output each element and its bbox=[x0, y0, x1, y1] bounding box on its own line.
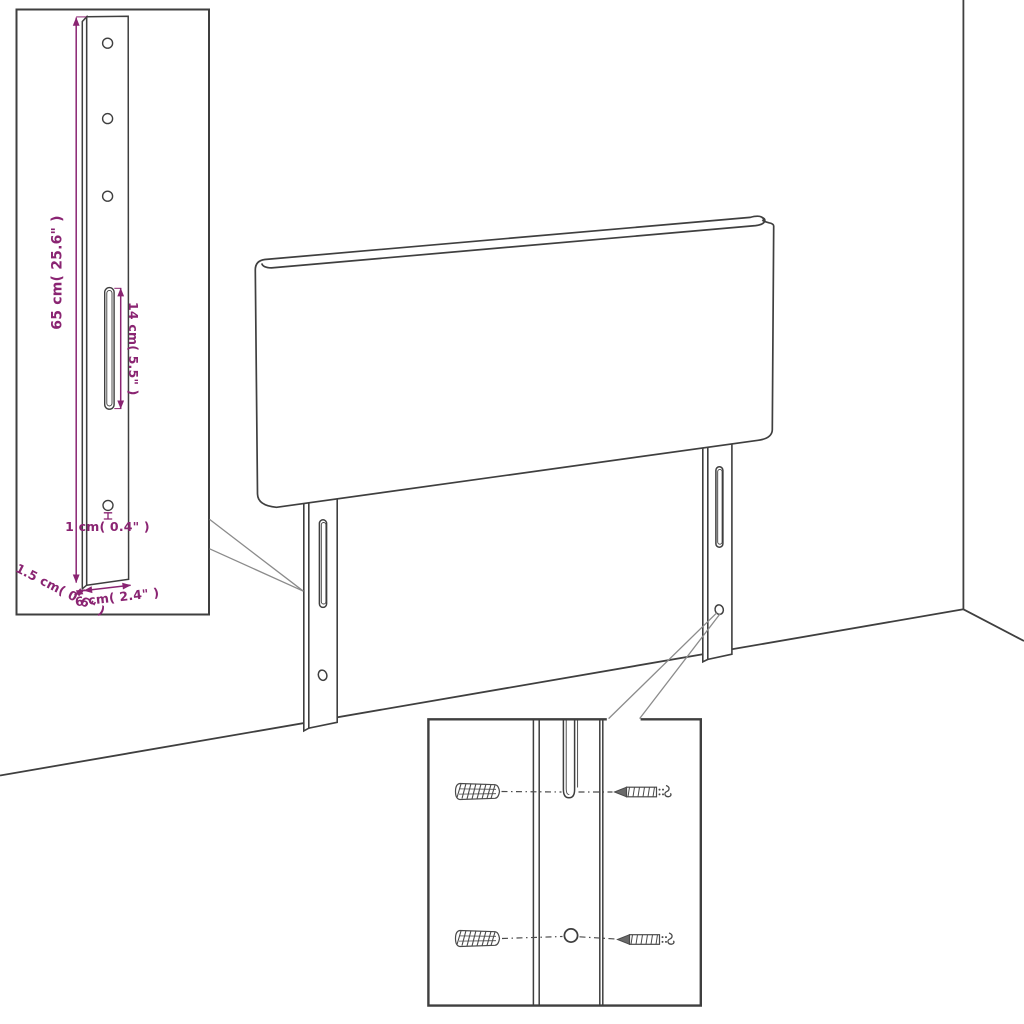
headboard-panel bbox=[255, 216, 773, 507]
wall-plug-icon-top bbox=[456, 784, 500, 800]
callout-left-leg bbox=[210, 519, 304, 591]
panel-outline bbox=[255, 216, 773, 507]
mounting-inset bbox=[428, 719, 700, 1005]
hole-dim-label: 1 cm( 0.4" ) bbox=[65, 519, 150, 534]
slot-dim-label: 14 cm( 5.5" ) bbox=[126, 302, 141, 396]
wall-plug-icon-bottom bbox=[456, 931, 500, 947]
floor-line-right bbox=[963, 609, 1024, 641]
diagram-canvas: 65 cm( 25.6" ) 14 cm( 5.5" ) 1 cm( 0.4" … bbox=[0, 0, 1024, 1024]
leg-details bbox=[317, 467, 724, 682]
mounting-inset-bg bbox=[428, 719, 700, 1005]
leg-detail-inset: 65 cm( 25.6" ) 14 cm( 5.5" ) 1 cm( 0.4" … bbox=[13, 10, 209, 619]
callout-right-line-1 bbox=[609, 613, 717, 719]
callout-right-line-2 bbox=[640, 613, 721, 718]
headboard-diagram: 65 cm( 25.6" ) 14 cm( 5.5" ) 1 cm( 0.4" … bbox=[0, 0, 1024, 1024]
height-dim-label: 65 cm( 25.6" ) bbox=[50, 215, 66, 329]
